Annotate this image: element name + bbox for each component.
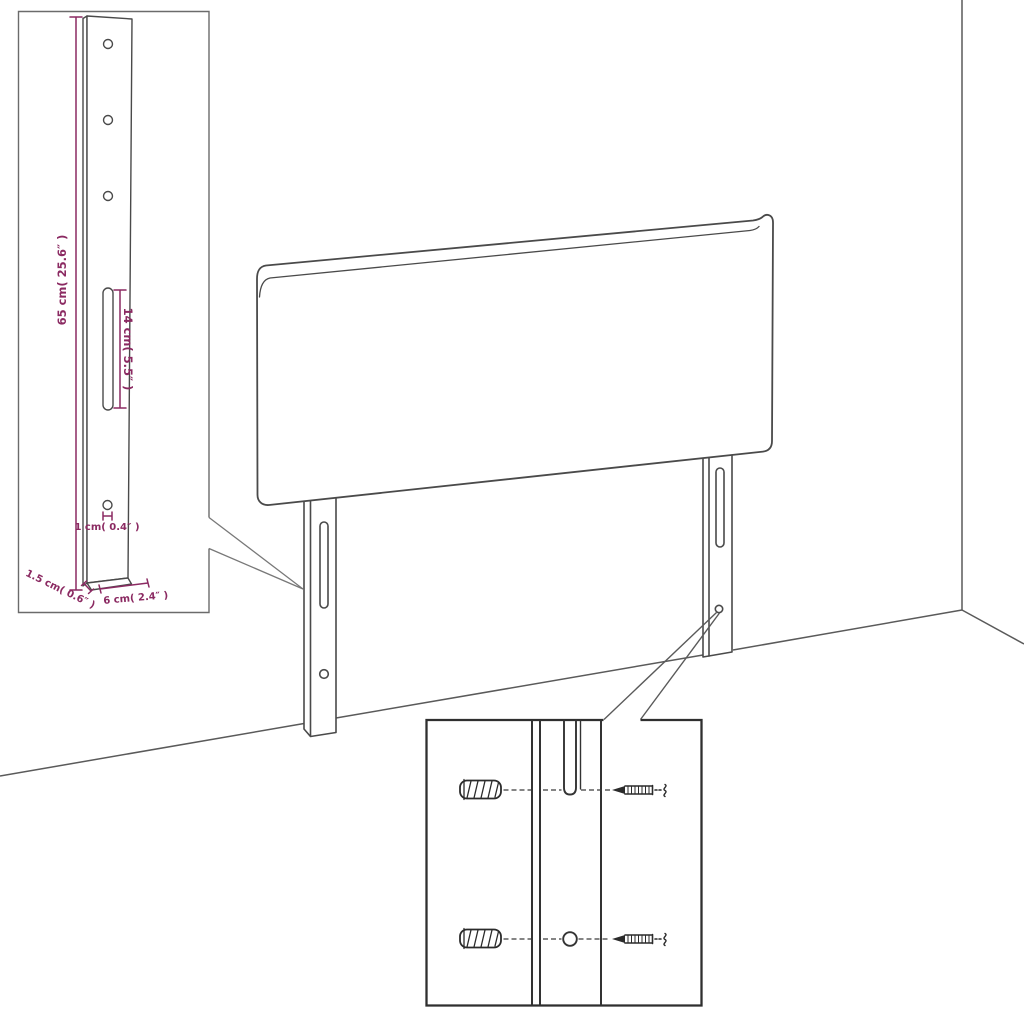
leg-front-face — [87, 16, 132, 583]
dimension-label: 6 cm( 2.4″ ) — [103, 590, 169, 607]
diagram-canvas: 65 cm( 25.6″ ) 14 cm( 5.5″ ) 1 cm( 0.4″ … — [0, 0, 1024, 1024]
screw-squiggle — [664, 934, 666, 946]
callout-line — [209, 518, 303, 590]
leg-detail-inset: 65 cm( 25.6″ ) 14 cm( 5.5″ ) 1 cm( 0.4″ … — [19, 12, 210, 613]
screw-squiggle — [664, 785, 666, 797]
leg-body — [304, 484, 336, 737]
mounting-leg-left — [304, 484, 336, 737]
screw-icon — [612, 785, 666, 797]
panel-outline — [257, 215, 773, 505]
assembly-diagram: 65 cm( 25.6″ ) 14 cm( 5.5″ ) 1 cm( 0.4″ … — [0, 0, 1024, 1024]
callout-line — [209, 549, 303, 590]
headboard-panel — [257, 215, 773, 505]
callout-line — [641, 613, 720, 720]
hole-closeup — [563, 932, 577, 946]
leg-body — [703, 440, 732, 658]
leg-strip-closeup — [532, 720, 601, 1005]
callout-wedge-right — [604, 613, 720, 720]
dimension-leg-height: 65 cm( 25.6″ ) — [55, 17, 82, 590]
screw-threads — [628, 935, 649, 943]
floor-line-right — [962, 610, 1024, 644]
dimension-label: 1 cm( 0.4″ ) — [74, 522, 139, 533]
screw-threads — [628, 786, 649, 794]
plug-ribs — [464, 780, 499, 800]
dimension-line — [70, 17, 82, 590]
mounting-detail-inset — [427, 720, 702, 1006]
screw-icon — [612, 934, 666, 946]
screw-tip — [612, 786, 625, 794]
leg-detail-drawing — [83, 16, 132, 590]
mounting-leg-right — [703, 440, 732, 658]
screw-tip — [612, 935, 625, 943]
dimension-label: 14 cm( 5.5″ ) — [121, 308, 135, 391]
wall-plug-icon — [460, 929, 501, 949]
callout-wedge-left — [209, 518, 303, 590]
wall-plug-icon — [460, 780, 501, 800]
slot-closeup — [564, 720, 576, 795]
callout-line — [604, 613, 717, 720]
headboard-drawing — [257, 215, 773, 737]
floor-line-left — [0, 610, 962, 776]
dimension-label: 65 cm( 25.6″ ) — [55, 235, 69, 326]
hardware-row-slot — [460, 780, 666, 800]
plug-ribs — [464, 929, 499, 949]
